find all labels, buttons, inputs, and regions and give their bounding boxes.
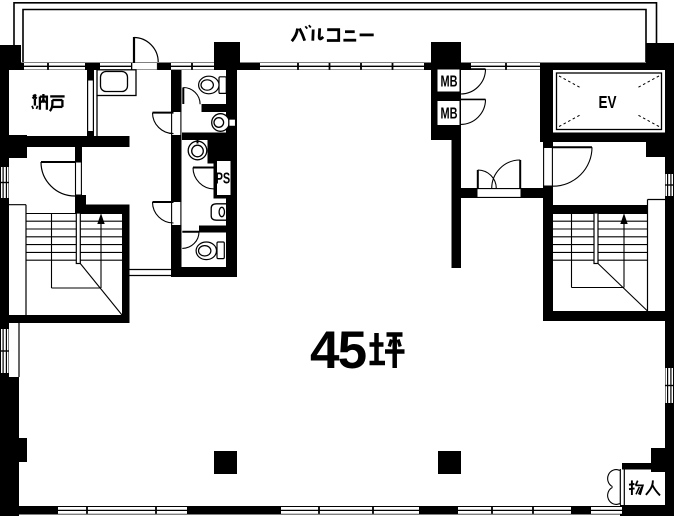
svg-text:PS: PS xyxy=(216,171,231,188)
svg-text:MB: MB xyxy=(441,73,458,90)
svg-text:EV: EV xyxy=(599,92,617,112)
svg-text:MB: MB xyxy=(441,105,458,122)
svg-text:45: 45 xyxy=(310,321,366,380)
